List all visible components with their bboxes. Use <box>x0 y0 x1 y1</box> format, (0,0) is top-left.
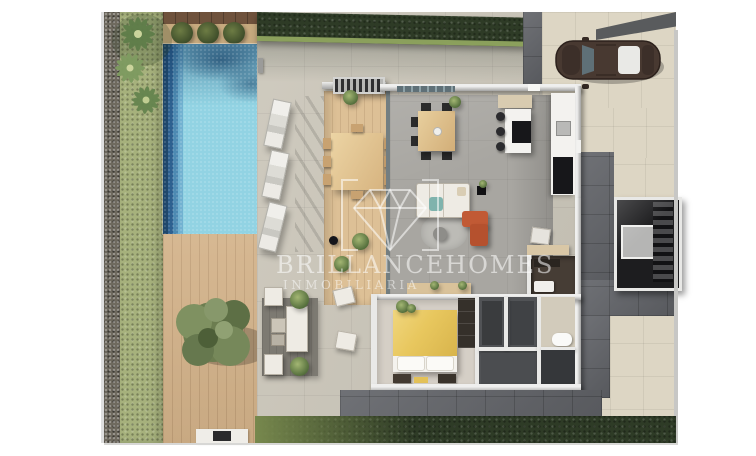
stair-tower <box>614 197 682 291</box>
credenza-plant <box>458 281 467 290</box>
pool-ladder <box>258 58 263 73</box>
orange-chaise <box>470 224 488 246</box>
lounge-armchair <box>264 287 283 306</box>
bathroom-counter <box>534 259 560 267</box>
parked-car <box>552 36 666 90</box>
barbecue-grill <box>213 431 231 441</box>
outdoor-chair <box>323 138 331 149</box>
floorplan-render: BRILLANCEHOMES INMOBILIARIA <box>0 0 756 456</box>
terrace-plant <box>343 90 358 105</box>
pergola <box>333 77 385 94</box>
bathroom-wall <box>527 255 531 297</box>
lounge-armchair <box>264 354 283 375</box>
bedroom-mat <box>414 377 428 383</box>
side-table-plant <box>479 180 487 188</box>
outdoor-chair <box>351 124 363 132</box>
dressing-room <box>482 301 502 345</box>
dark-tile-col-right <box>580 316 610 398</box>
dressing-room <box>510 301 534 345</box>
top-hedge <box>257 12 539 47</box>
bed-pillow <box>397 356 425 371</box>
bedroom-dresser <box>438 374 456 383</box>
lounge-table <box>271 318 286 333</box>
credenza-plant <box>430 281 439 290</box>
core-wall <box>479 347 540 351</box>
palm-trees <box>102 10 178 122</box>
pouf <box>530 227 551 245</box>
terrace-plant <box>352 233 369 250</box>
side-gate-path <box>523 12 542 86</box>
bathroom-sink <box>534 281 554 292</box>
double-bed <box>393 310 457 372</box>
shower <box>541 350 575 387</box>
kitchen-sink <box>556 121 571 136</box>
sofa-pillow <box>457 187 466 196</box>
right-wall-door-gap <box>575 140 581 153</box>
bedroom-bench <box>393 374 411 383</box>
lounge-plant <box>290 290 309 309</box>
deck-chair <box>335 330 358 351</box>
bottom-hedge <box>255 416 676 443</box>
fridge <box>553 157 573 194</box>
lounge-plant <box>290 357 309 376</box>
core-wall <box>504 297 508 349</box>
boundary-fence-right <box>674 30 678 443</box>
patio-plant <box>334 256 350 272</box>
coffee-table <box>433 227 447 241</box>
outdoor-chair <box>323 174 331 185</box>
glass-sliding-door <box>397 86 455 92</box>
dining-chair <box>442 152 452 160</box>
dining-chair <box>421 152 431 160</box>
side-path-right <box>612 158 676 198</box>
outdoor-dining-table <box>331 133 383 190</box>
entry-door-gap <box>528 84 540 91</box>
boxwood-bush <box>197 22 219 44</box>
bed-pillow <box>426 356 454 371</box>
outdoor-chair <box>323 156 331 167</box>
bar-stool <box>496 127 505 136</box>
corridor-floor <box>481 353 538 385</box>
dining-chair <box>421 103 431 111</box>
bed-duvet-yellow <box>393 310 457 356</box>
plot-border-bottom <box>104 443 678 445</box>
entry-plant <box>449 96 461 108</box>
table-centerpiece <box>433 127 442 136</box>
bedroom-plant <box>407 304 416 313</box>
toilet <box>552 333 572 346</box>
lower-bathroom <box>541 297 575 389</box>
fire-bowl <box>329 236 338 245</box>
bar-stool <box>496 112 505 121</box>
bar-stool <box>496 142 505 151</box>
stair-light <box>617 200 673 282</box>
wing-core <box>479 297 540 387</box>
kitchen-tall-cabinet <box>498 95 532 108</box>
lounge-sofa <box>286 306 308 352</box>
sofa-throw <box>429 197 443 211</box>
lounge-pouf <box>271 334 285 346</box>
boxwood-bush <box>223 22 245 44</box>
outdoor-chair <box>351 191 363 199</box>
island-cooktop <box>512 121 531 143</box>
console-desk <box>527 245 569 255</box>
sofa-cushion-line <box>443 184 444 217</box>
